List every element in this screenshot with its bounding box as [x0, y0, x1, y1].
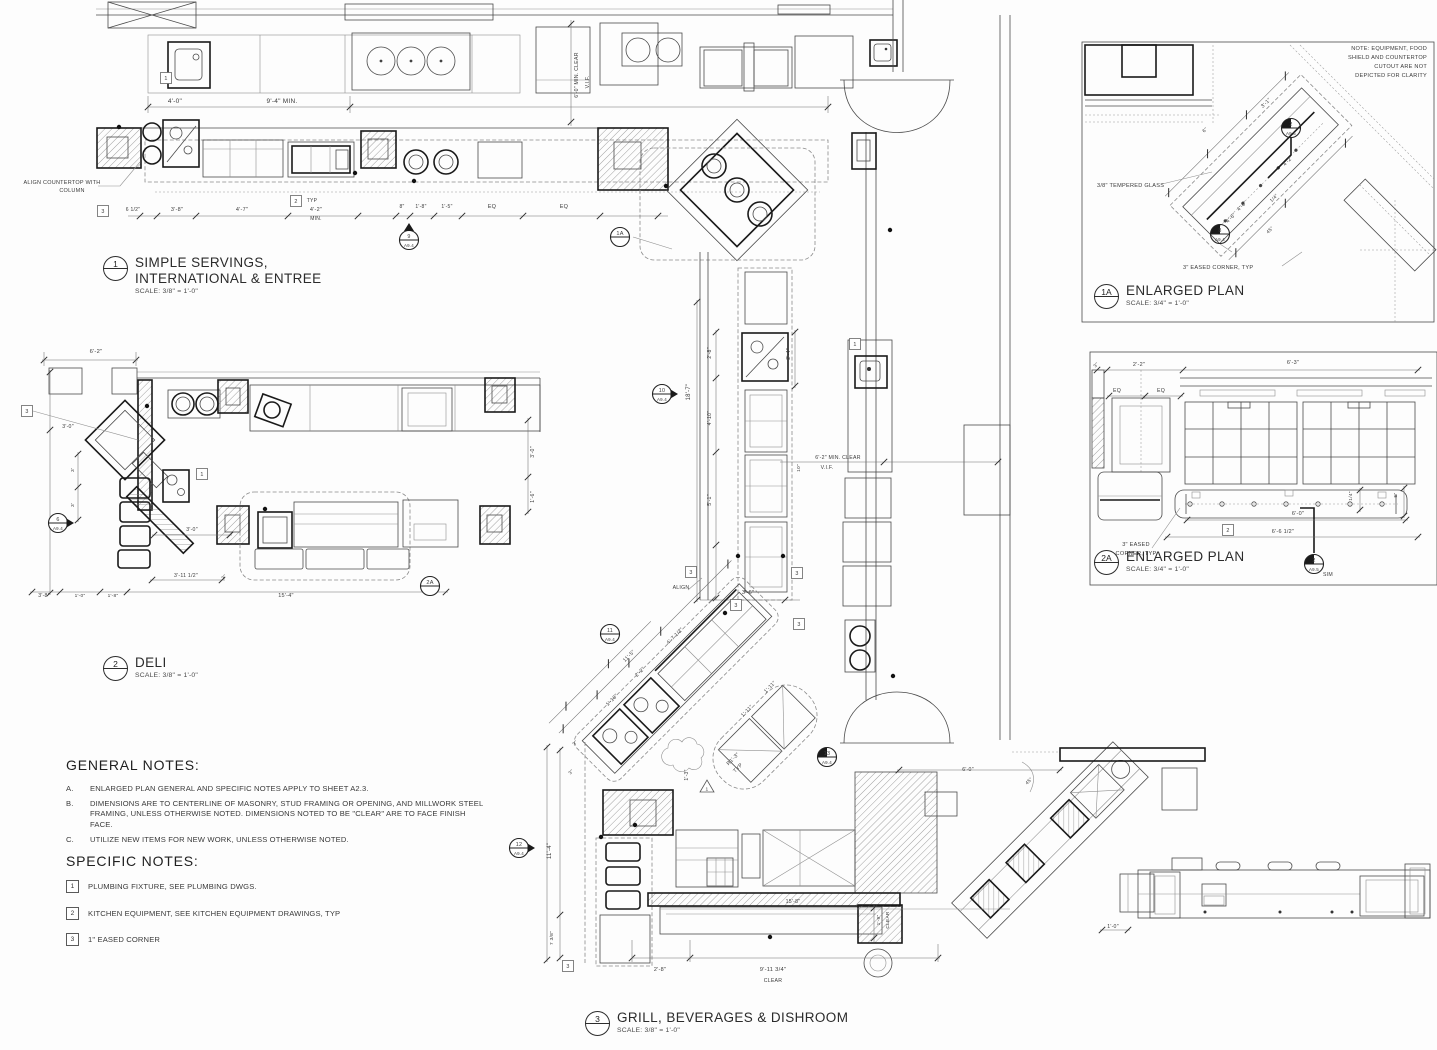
dimension-text: 1'-6" — [530, 491, 536, 503]
dimension-text: V.I.F. — [821, 465, 834, 471]
dimension-text: 3'-1" — [1260, 97, 1272, 109]
detail-marker: 8A9.4 — [1211, 225, 1230, 244]
keynote-tag: 3 — [98, 206, 109, 217]
enlarged-plan-1a — [1082, 42, 1436, 322]
specific-note-item: 2KITCHEN EQUIPMENT, SEE KITCHEN EQUIPMEN… — [66, 907, 490, 920]
dimension-text: TYP — [732, 762, 744, 774]
plan-number-bubble: 2 — [103, 656, 128, 681]
dimension-text: 4'-2" — [310, 207, 322, 213]
dimension-text: COLUMN — [59, 188, 84, 194]
general-notes-heading: GENERAL NOTES: — [66, 757, 490, 773]
dimension-text: EQ — [1113, 388, 1121, 394]
dimension-text: 8" — [399, 204, 404, 210]
dimension-text: CLEAR — [885, 911, 891, 929]
dimension-text: 2'-8" — [707, 347, 713, 359]
svg-text:1: 1 — [853, 342, 856, 348]
dimension-text: 1'-8" — [415, 204, 426, 210]
dimension-text: CLEAR — [764, 978, 783, 984]
dimension-text: 1'-8" — [108, 593, 119, 599]
dimension-text: 3' — [70, 503, 76, 507]
dimension-text: 1/4" — [1348, 491, 1354, 500]
corridor-run — [688, 252, 1001, 816]
dimension-text: 10" — [796, 464, 802, 472]
svg-text:3: 3 — [101, 209, 104, 215]
keynote-tag: 1 — [850, 339, 861, 350]
svg-text:A9.5: A9.5 — [1309, 567, 1319, 572]
dimension-text: 6" — [1201, 126, 1209, 134]
keynote-tag: 2 — [66, 907, 79, 920]
plan-title-text: ENLARGED PLAN — [1126, 283, 1245, 299]
keynote-tag: 1 — [197, 469, 208, 480]
svg-text:1: 1 — [200, 472, 203, 478]
dimension-text: 1'-3" — [684, 769, 690, 780]
keynote-tag: 3 — [792, 568, 803, 579]
plan-grill-beverages-dishroom — [544, 548, 1430, 977]
dimension-text: 3'-11 1/2" — [174, 573, 198, 579]
plan-number-bubble: 2A — [1094, 550, 1119, 575]
note-key: C. — [66, 835, 79, 845]
svg-text:1: 1 — [706, 787, 709, 793]
dimension-text: 6'-0" MIN. CLEAR — [574, 52, 580, 97]
plan-scale: SCALE: 3/4" = 1'-0" — [1126, 300, 1245, 307]
detail-marker: 10A9.4 — [653, 385, 679, 404]
dimension-text: NOTE: EQUIPMENT, FOOD — [1351, 46, 1427, 52]
plan-title-deli: 2 DELI SCALE: 3/8" = 1'-0" — [103, 655, 198, 681]
dimension-text: MIN. — [310, 216, 322, 222]
dimension-text: 3'-8" — [171, 207, 183, 213]
dimension-text: 3'-6" — [742, 590, 754, 596]
keynote-tag: 3 — [731, 600, 742, 611]
dimension-text: ALIGN — [673, 585, 690, 591]
svg-text:9: 9 — [407, 234, 410, 240]
plan-number: 1A — [1095, 287, 1118, 297]
dimension-text: 18'-7" — [686, 384, 692, 401]
dimension-text: 6'-2" MIN. CLEAR — [815, 455, 860, 461]
keynote-tag: 3 — [686, 567, 697, 578]
svg-text:10: 10 — [659, 388, 666, 394]
dimension-text: 3" — [571, 739, 579, 747]
dimension-text: 3'-0" — [186, 527, 198, 533]
dimension-text: ALIGN COUNTERTOP WITH — [23, 180, 100, 186]
plan-number: 2 — [104, 659, 127, 669]
detail-marker: 6A9.4 — [49, 514, 75, 533]
svg-text:2: 2 — [1312, 558, 1315, 564]
dimension-text: 3'-0" — [62, 424, 74, 430]
keynote-tag: 2 — [1223, 525, 1234, 536]
detail-marker: 2A9.5 — [1282, 119, 1301, 138]
general-note-item: C.UTILIZE NEW ITEMS FOR NEW WORK, UNLESS… — [66, 835, 490, 845]
detail-marker: 1A — [611, 228, 630, 247]
plan-simple-servings — [96, 0, 1010, 743]
svg-text:A9.4: A9.4 — [1215, 237, 1225, 242]
detail-marker: 2A9.5 — [1305, 555, 1324, 574]
dimension-text: 4'-6" — [1225, 212, 1237, 224]
dimension-text: 1'-11" — [740, 704, 754, 718]
plan-title-text: SIMPLE SERVINGS, — [135, 255, 322, 271]
dimension-text: 2'-2" — [634, 666, 646, 678]
svg-text:A9.4: A9.4 — [514, 851, 524, 856]
dimension-text: 15'-8" — [786, 899, 801, 905]
dimension-text: 3" — [567, 768, 575, 776]
dimension-text: 6'-0" — [1292, 511, 1304, 517]
dimension-text: 2'-2" — [1133, 362, 1145, 368]
plan-title-grill: 3 GRILL, BEVERAGES & DISHROOM SCALE: 3/8… — [585, 1010, 848, 1036]
svg-text:6: 6 — [56, 517, 59, 523]
dimension-text: 1'-5" — [441, 204, 452, 210]
plan-number-bubble: 3 — [585, 1011, 610, 1036]
keynote-tag: 3 — [794, 619, 805, 630]
svg-text:3: 3 — [797, 622, 800, 628]
note-text: KITCHEN EQUIPMENT, SEE KITCHEN EQUIPMENT… — [88, 909, 340, 918]
svg-text:1: 1 — [164, 76, 167, 82]
architectural-sheet: 4'-0"9'-4" MIN.ALIGN COUNTERTOP WITHCOLU… — [0, 0, 1437, 1050]
dimension-text: 5" — [1393, 493, 1399, 498]
specific-note-item: 31" EASED CORNER — [66, 933, 490, 946]
plan-number-bubble: 1A — [1094, 284, 1119, 309]
dimension-text: 6'-3" — [1287, 360, 1299, 366]
dimension-text: 5'-1" — [707, 494, 713, 506]
plan-title-text: GRILL, BEVERAGES & DISHROOM — [617, 1010, 848, 1026]
plan-title-simple-servings: 1 SIMPLE SERVINGS, INTERNATIONAL & ENTRE… — [103, 255, 322, 295]
specific-note-item: 1PLUMBING FIXTURE, SEE PLUMBING DWGS. — [66, 880, 490, 893]
dimension-text: TYP — [307, 198, 318, 204]
dimension-text: 6'-2" — [90, 349, 103, 355]
dimension-text: SIM — [1323, 572, 1333, 578]
dimension-text: CUTOUT ARE NOT — [1374, 64, 1427, 70]
dimension-text: 4'-7" — [236, 207, 248, 213]
keynote-tag: 3 — [563, 961, 574, 972]
detail-marker: 9A9.4 — [400, 223, 419, 250]
svg-text:8: 8 — [1218, 228, 1221, 234]
svg-text:12: 12 — [516, 842, 523, 848]
detail-marker: 13A9.4 — [818, 748, 837, 767]
svg-text:3: 3 — [795, 571, 798, 577]
svg-text:3: 3 — [689, 570, 692, 576]
plan-scale: SCALE: 3/8" = 1'-0" — [617, 1027, 848, 1034]
dimension-text: EQ — [488, 204, 497, 210]
plan-title-enlarged-2a: 2A ENLARGED PLAN SCALE: 3/4" = 1'-0" — [1094, 549, 1245, 575]
dimension-text: 6 1/2" — [126, 207, 140, 213]
plan-number: 3 — [586, 1014, 609, 1024]
keynote-tag: 2 — [291, 196, 302, 207]
keynote-tag: 3 — [66, 933, 79, 946]
svg-text:3: 3 — [734, 603, 737, 609]
dimension-text: 4'-2" — [1282, 155, 1294, 167]
general-note-item: A.ENLARGED PLAN GENERAL AND SPECIFIC NOT… — [66, 784, 490, 794]
dimension-text: 1'-0" — [1107, 924, 1119, 930]
detail-marker: 2A — [421, 577, 440, 596]
general-note-item: B.DIMENSIONS ARE TO CENTERLINE OF MASONR… — [66, 799, 490, 830]
dimension-text: 3/8" TEMPERED GLASS — [1097, 183, 1164, 189]
dimension-text: V.I.F. — [585, 76, 591, 89]
note-text: UTILIZE NEW ITEMS FOR NEW WORK, UNLESS O… — [90, 835, 349, 845]
dimension-text: EQ — [1157, 388, 1165, 394]
svg-text:A9.4: A9.4 — [404, 243, 414, 248]
dimension-text: 4'-0" — [1236, 200, 1248, 212]
general-notes-list: A.ENLARGED PLAN GENERAL AND SPECIFIC NOT… — [66, 784, 490, 845]
plan-title-text-2: INTERNATIONAL & ENTREE — [135, 271, 322, 287]
dimension-text: 3'-0" — [530, 446, 536, 458]
dimension-text: SHIELD AND COUNTERTOP — [1348, 55, 1427, 61]
dimension-text: 11'-4" — [547, 843, 553, 859]
svg-text:3: 3 — [566, 964, 569, 970]
detail-marker: 11A9.4 — [601, 625, 620, 644]
dimension-text: 15'-4" — [278, 593, 294, 599]
plan-number: 1 — [104, 259, 127, 269]
keynote-tag: 3 — [22, 406, 33, 417]
plan-number: 2A — [1095, 553, 1118, 563]
note-text: PLUMBING FIXTURE, SEE PLUMBING DWGS. — [88, 882, 257, 891]
dimension-text: 1/4" — [1269, 193, 1280, 204]
specific-notes-list: 1PLUMBING FIXTURE, SEE PLUMBING DWGS.2KI… — [66, 880, 490, 946]
dimension-text: 45° — [1265, 225, 1275, 235]
svg-text:2: 2 — [1289, 122, 1292, 128]
dimension-text: 7 3/8" — [549, 931, 555, 945]
svg-text:A9.4: A9.4 — [657, 397, 667, 402]
note-text: ENLARGED PLAN GENERAL AND SPECIFIC NOTES… — [90, 784, 369, 794]
plan-deli — [29, 352, 540, 596]
dimension-text: EQ — [560, 204, 569, 210]
detail-marker: 12A9.4 — [510, 839, 536, 858]
specific-notes: SPECIFIC NOTES: 1PLUMBING FIXTURE, SEE P… — [66, 853, 490, 960]
plan-scale: SCALE: 3/4" = 1'-0" — [1126, 566, 1245, 573]
revision-triangle-tag: 1 — [700, 780, 714, 793]
svg-text:A9.4: A9.4 — [822, 760, 832, 765]
plan-scale: SCALE: 3/8" = 1'-0" — [135, 288, 322, 295]
dimension-text: 3' — [70, 468, 76, 472]
svg-text:3: 3 — [25, 409, 28, 415]
note-text: 1" EASED CORNER — [88, 935, 160, 944]
dimension-text: 3" EASED — [1122, 542, 1150, 548]
note-text: DIMENSIONS ARE TO CENTERLINE OF MASONRY,… — [90, 799, 490, 830]
svg-text:11: 11 — [607, 628, 613, 634]
dimension-text: 4'-10" — [707, 411, 713, 426]
dimension-text: DEPICTED FOR CLARITY — [1355, 73, 1427, 79]
dimension-text: 2'-8" — [654, 967, 666, 973]
keynote-tag: 1 — [66, 880, 79, 893]
svg-text:A9.4: A9.4 — [605, 637, 615, 642]
svg-text:2: 2 — [1226, 528, 1229, 534]
dimension-text: 6'-0" — [962, 767, 974, 773]
plan-title-text: DELI — [135, 655, 198, 671]
dimension-text: 2'-4" — [786, 348, 792, 360]
svg-text:13: 13 — [824, 751, 831, 757]
dimension-text: 1'-9" — [876, 915, 882, 926]
keynote-tag: 1 — [161, 73, 172, 84]
general-notes: GENERAL NOTES: A.ENLARGED PLAN GENERAL A… — [66, 757, 490, 850]
dimension-text: 3" EASED CORNER, TYP — [1183, 265, 1253, 271]
plan-title-text: ENLARGED PLAN — [1126, 549, 1245, 565]
dimension-text: 9'-11 3/4" — [760, 967, 787, 973]
plan-number-bubble: 1 — [103, 256, 128, 281]
dimension-text: 1'-0" — [75, 593, 86, 599]
svg-text:2A: 2A — [426, 580, 433, 586]
svg-text:A9.5: A9.5 — [1286, 131, 1296, 136]
dimension-text: 4'-0" — [168, 98, 183, 105]
dimension-text: 3'-8" — [38, 593, 50, 599]
plan-scale: SCALE: 3/8" = 1'-0" — [135, 672, 198, 679]
svg-text:2: 2 — [294, 199, 297, 205]
note-key: A. — [66, 784, 79, 794]
dimension-text: 9'-4" MIN. — [267, 98, 298, 105]
note-key: B. — [66, 799, 79, 830]
svg-text:1A: 1A — [616, 231, 623, 237]
plan-title-enlarged-1a: 1A ENLARGED PLAN SCALE: 3/4" = 1'-0" — [1094, 283, 1245, 309]
dimension-text: 6'-6 1/2" — [1272, 529, 1294, 535]
specific-notes-heading: SPECIFIC NOTES: — [66, 853, 490, 869]
svg-text:A9.4: A9.4 — [53, 526, 63, 531]
